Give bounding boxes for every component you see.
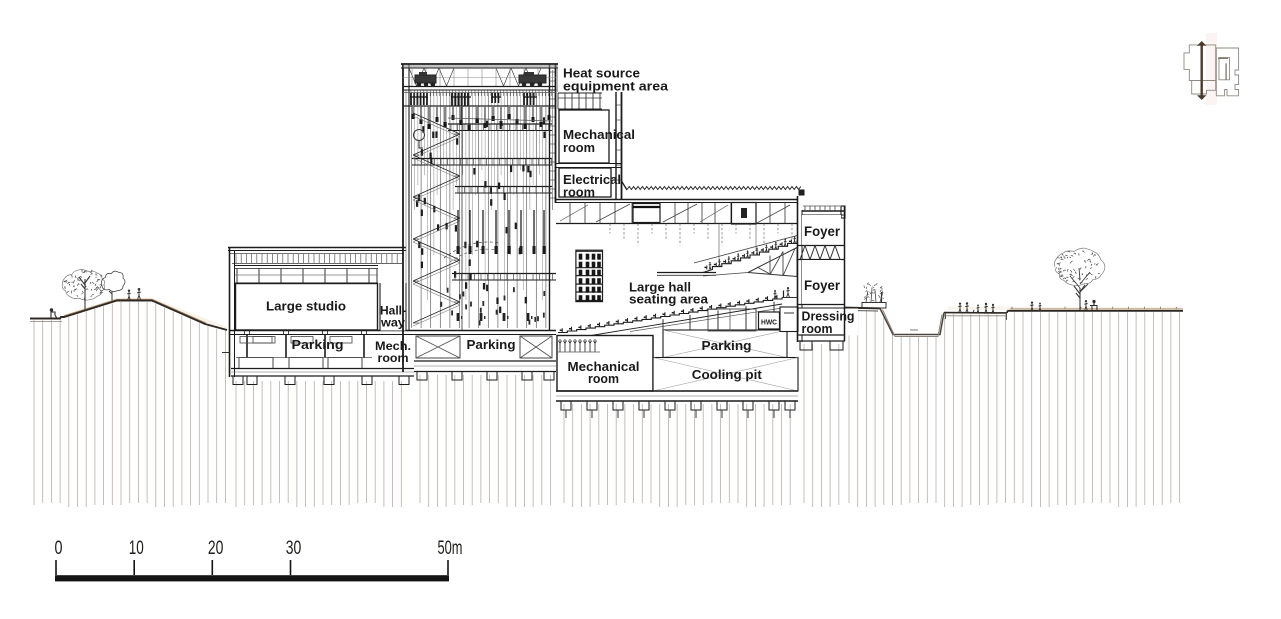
svg-text:room: room (802, 321, 833, 336)
svg-text:seating area: seating area (629, 292, 709, 307)
svg-text:20: 20 (208, 538, 224, 559)
svg-text:30: 30 (286, 538, 302, 559)
svg-text:Foyer: Foyer (804, 224, 841, 239)
svg-text:Heat source: Heat source (563, 67, 640, 81)
svg-text:equipment area: equipment area (563, 80, 669, 94)
svg-text:50m: 50m (438, 538, 463, 559)
svg-text:Large studio: Large studio (266, 298, 346, 313)
svg-text:0: 0 (55, 538, 63, 559)
svg-text:room: room (588, 371, 619, 386)
svg-text:room: room (563, 186, 595, 200)
svg-text:Mechanical: Mechanical (563, 128, 635, 142)
svg-text:HWC: HWC (761, 318, 778, 327)
svg-text:Foyer: Foyer (804, 278, 841, 293)
svg-text:room: room (563, 141, 595, 155)
svg-text:10: 10 (129, 538, 144, 559)
svg-text:Cooling pit: Cooling pit (692, 367, 763, 382)
svg-text:way: way (380, 316, 405, 330)
svg-text:Parking: Parking (467, 337, 516, 352)
svg-text:Parking: Parking (702, 338, 752, 353)
svg-text:Parking: Parking (292, 337, 344, 352)
